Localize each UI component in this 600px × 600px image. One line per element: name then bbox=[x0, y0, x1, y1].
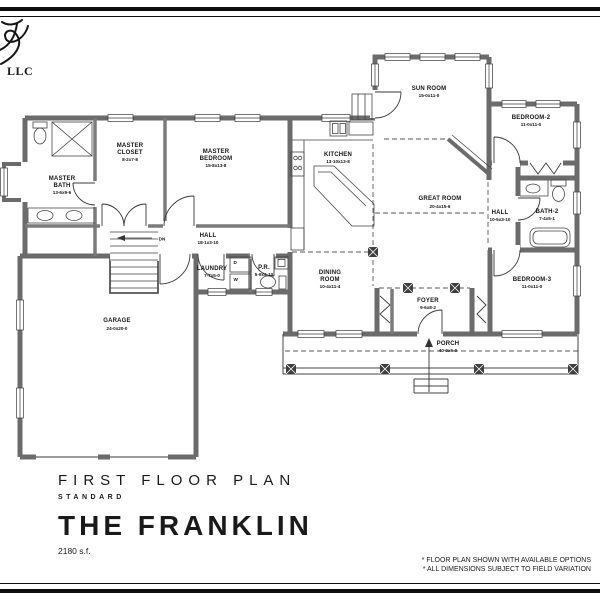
room-dims-great-room: 20-4x15-6 bbox=[430, 204, 451, 209]
exterior-walls bbox=[20, 57, 577, 457]
room-label-garage: GARAGE bbox=[103, 318, 131, 324]
svg-text:BEDROOM: BEDROOM bbox=[200, 156, 233, 162]
toilet-tank bbox=[279, 276, 286, 289]
window bbox=[385, 54, 410, 61]
room-dims-garage: 24-0x20-0 bbox=[107, 326, 128, 331]
window bbox=[235, 115, 260, 122]
kitchen-island bbox=[314, 166, 374, 226]
entry-arrow bbox=[425, 338, 433, 392]
vanity-counter bbox=[28, 208, 95, 223]
window bbox=[486, 64, 493, 88]
model-name: THE FRANKLIN bbox=[58, 510, 313, 542]
room-label-laundry: LAUNDRY bbox=[197, 266, 228, 272]
room-label-hall-master: HALL bbox=[200, 233, 217, 239]
range bbox=[291, 152, 304, 176]
room-dims-sun-room: 15-0x11-0 bbox=[419, 93, 440, 98]
page: { "logo": { "company_suffix": "LLC" }, "… bbox=[0, 0, 600, 600]
window bbox=[455, 54, 480, 61]
plan-title: FIRST FLOOR PLAN bbox=[58, 472, 313, 489]
stairs-dn-label: DN bbox=[159, 237, 166, 242]
window bbox=[336, 331, 362, 338]
window bbox=[574, 122, 581, 148]
room-dims-dining-room: 10-4x11-4 bbox=[320, 284, 341, 289]
porch-posts bbox=[286, 364, 578, 374]
window bbox=[208, 289, 226, 296]
room-dims-master-bath: 13-6x9-6 bbox=[53, 190, 72, 195]
toilet-bowl bbox=[34, 128, 46, 144]
stairwell-walls bbox=[110, 256, 158, 293]
fireplace-inner-line bbox=[452, 135, 492, 169]
room-label-master-bath: MASTER bbox=[49, 176, 76, 182]
toilet-bowl bbox=[553, 187, 565, 202]
room-label-bedroom-2: BEDROOM-2 bbox=[512, 115, 551, 121]
room-label-great-room: GREAT ROOM bbox=[419, 196, 462, 202]
room-label-master-bedroom: MASTER bbox=[203, 149, 230, 155]
bath2-vanity bbox=[520, 180, 548, 196]
master-bath-fixtures bbox=[28, 122, 95, 223]
window bbox=[420, 54, 445, 61]
room-label-master-closet: MASTER bbox=[117, 143, 144, 149]
stairs bbox=[110, 232, 158, 288]
room-label-kitchen: KITCHEN bbox=[324, 152, 352, 158]
room-dims-porch: 40-0x6-0 bbox=[439, 348, 458, 353]
window bbox=[256, 289, 272, 296]
window bbox=[108, 115, 133, 122]
kitchen-fixtures bbox=[291, 121, 374, 250]
room-label-foyer: FOYER bbox=[417, 298, 439, 304]
note-options: * FLOOR PLAN SHOWN WITH AVAILABLE OPTION… bbox=[422, 556, 591, 565]
room-label-dining-room: DINING bbox=[319, 270, 341, 276]
title-block: FIRST FLOOR PLAN STANDARD THE FRANKLIN 2… bbox=[58, 472, 313, 556]
window bbox=[17, 388, 24, 418]
secondary-walls bbox=[4, 139, 489, 200]
plan-variant: STANDARD bbox=[58, 494, 313, 501]
svg-text:CLOSET: CLOSET bbox=[117, 150, 143, 156]
fireplace-wall bbox=[448, 139, 489, 174]
toilet-bowl bbox=[261, 276, 276, 288]
window bbox=[298, 331, 324, 338]
pr-sink bbox=[275, 257, 288, 269]
window bbox=[536, 101, 560, 108]
window bbox=[502, 101, 526, 108]
washer-label: W bbox=[234, 277, 239, 282]
window bbox=[1, 168, 8, 196]
window bbox=[574, 266, 581, 296]
stairs-down-arrow bbox=[117, 235, 152, 241]
room-dims-foyer: 9-6x8-2 bbox=[420, 305, 436, 310]
room-dims-master-bedroom: 15-8x13-8 bbox=[206, 163, 227, 168]
window bbox=[372, 64, 379, 86]
room-dims-hall-master: 18-1x3-10 bbox=[198, 240, 219, 245]
porch-steps bbox=[414, 379, 448, 393]
room-label-powder-room: P.R. bbox=[258, 265, 270, 271]
room-dims-kitchen: 13-10x13-8 bbox=[326, 159, 350, 164]
room-dims-master-closet: 8-2x7-8 bbox=[122, 157, 138, 162]
foyer-closet-west-bifold bbox=[380, 296, 390, 323]
window bbox=[195, 115, 220, 122]
svg-text:BATH: BATH bbox=[53, 183, 70, 189]
room-dims-hall-bedroom: 10-5x3-10 bbox=[490, 217, 511, 222]
note-dimensions: * ALL DIMENSIONS SUBJECT TO FIELD VARIAT… bbox=[422, 565, 591, 574]
room-label-hall-bedroom: HALL bbox=[492, 210, 509, 216]
plan-area: 2180 s.f. bbox=[58, 546, 313, 556]
sink bbox=[526, 184, 540, 193]
sink bbox=[37, 211, 53, 221]
window bbox=[574, 192, 581, 214]
room-dims-bedroom-2: 11-0x11-0 bbox=[521, 122, 542, 127]
foyer-closet-east-bifold bbox=[477, 296, 486, 323]
room-label-sun-room: SUN ROOM bbox=[412, 86, 447, 92]
dashed-lines bbox=[285, 139, 578, 351]
window bbox=[17, 300, 24, 330]
window bbox=[322, 115, 350, 122]
room-dims-bedroom-3: 11-0x11-0 bbox=[522, 284, 543, 289]
sink bbox=[66, 211, 82, 221]
toilet-tank bbox=[551, 180, 566, 186]
window bbox=[502, 331, 542, 338]
room-label-porch: PORCH bbox=[437, 341, 460, 347]
disclaimer-notes: * FLOOR PLAN SHOWN WITH AVAILABLE OPTION… bbox=[422, 556, 591, 574]
counter-appliance bbox=[349, 122, 373, 135]
dryer-label: D bbox=[234, 260, 238, 265]
svg-text:ROOM: ROOM bbox=[320, 277, 339, 283]
room-label-bath-2: BATH-2 bbox=[536, 209, 559, 215]
room-dims-bath-2: 7-4x5-1 bbox=[539, 216, 555, 221]
room-dims-laundry: 7-7x5-0 bbox=[204, 273, 220, 278]
room-dims-powder-room: 5-9x4-10 bbox=[255, 272, 274, 277]
toilet-tank bbox=[33, 122, 47, 128]
room-label-bedroom-3: BEDROOM-3 bbox=[513, 277, 552, 283]
interior-columns bbox=[368, 247, 460, 293]
